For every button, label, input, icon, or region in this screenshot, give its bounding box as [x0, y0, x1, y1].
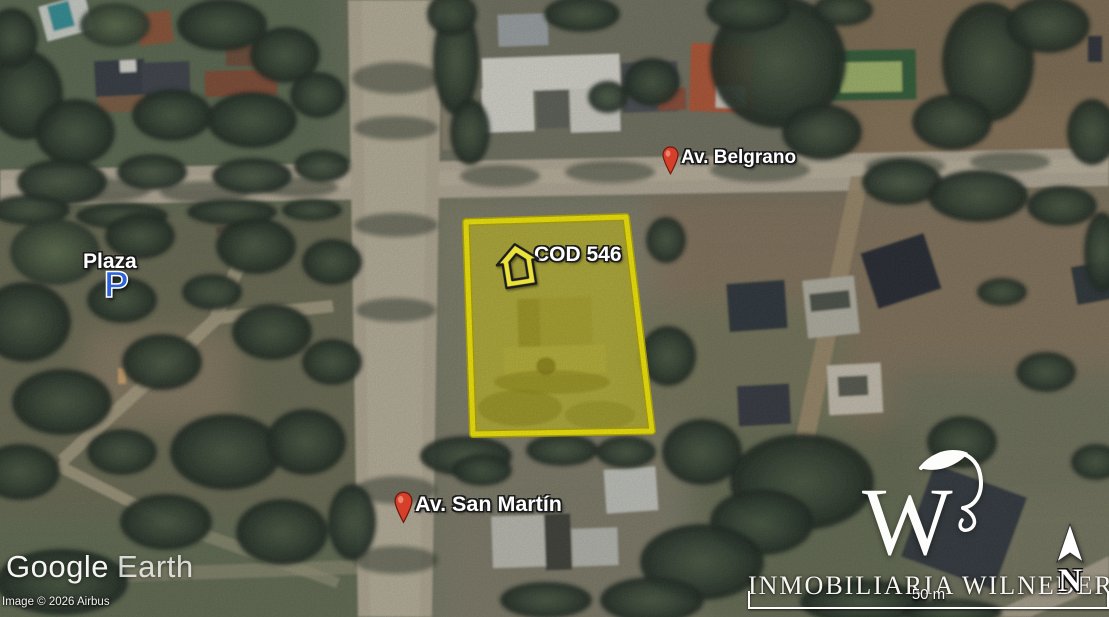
- google-earth-word1: Google: [6, 549, 109, 584]
- placemark-av-san-martin: Av. San Martín: [394, 491, 562, 525]
- street-name-belgrano: Av. Belgrano: [681, 148, 796, 167]
- parking-icon: P: [104, 266, 129, 303]
- google-earth-logo: GoogleEarth: [6, 551, 194, 582]
- property-code-text: COD 546: [534, 244, 622, 265]
- leaf-flourish-icon: [907, 442, 999, 538]
- property-code-label: COD 546: [496, 240, 622, 290]
- north-arrow-icon: [1052, 522, 1088, 564]
- scale-bar: 50 m: [748, 591, 1109, 609]
- map-pin-icon: [662, 146, 679, 176]
- google-earth-map-view: Av. Belgrano Av. San Martín Plaza P COD …: [0, 0, 1109, 617]
- scale-bar-label: 50 m: [750, 587, 1107, 602]
- google-earth-word2: Earth: [117, 549, 194, 584]
- placemark-av-belgrano: Av. Belgrano: [662, 146, 796, 176]
- imagery-copyright: Image © 2026 Airbus: [2, 596, 110, 608]
- house-icon: [492, 237, 543, 293]
- map-pin-icon: [394, 491, 413, 525]
- street-name-san-martin: Av. San Martín: [415, 494, 562, 516]
